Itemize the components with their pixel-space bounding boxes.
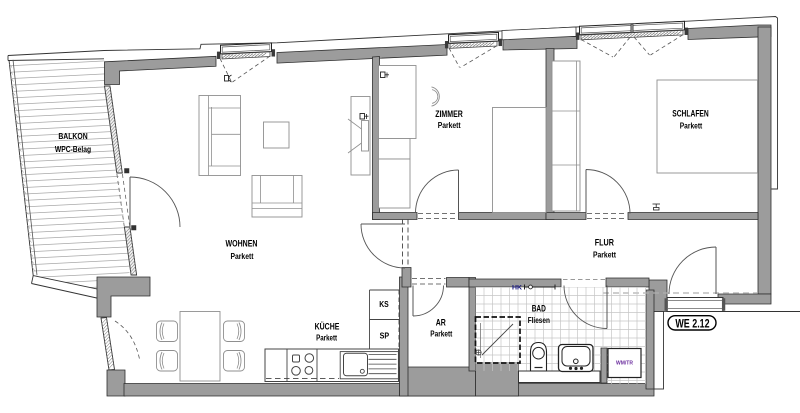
svg-text:ZIMMER: ZIMMER (435, 109, 463, 119)
svg-text:FLUR: FLUR (595, 238, 615, 248)
svg-text:BAD: BAD (532, 304, 546, 314)
svg-text:WM/TR: WM/TR (616, 361, 634, 367)
svg-text:BALKON: BALKON (58, 132, 87, 141)
svg-text:Parkett: Parkett (438, 121, 461, 130)
svg-text:SP: SP (380, 331, 390, 341)
svg-text:WE 2.12: WE 2.12 (675, 316, 709, 330)
svg-text:KS: KS (379, 299, 389, 309)
svg-text:Parkett: Parkett (231, 252, 254, 261)
svg-text:Parkett: Parkett (316, 333, 337, 342)
svg-text:Fliesen: Fliesen (528, 316, 550, 325)
svg-text:AR: AR (436, 318, 447, 328)
svg-text:Parkett: Parkett (593, 251, 616, 260)
svg-text:HK: HK (512, 284, 522, 291)
svg-text:KÜCHE: KÜCHE (315, 321, 340, 331)
svg-text:Parkett: Parkett (430, 330, 452, 339)
svg-text:WPC-Belag: WPC-Belag (55, 145, 91, 154)
svg-text:Parkett: Parkett (680, 121, 703, 130)
svg-text:WOHNEN: WOHNEN (226, 239, 258, 249)
svg-text:SCHLAFEN: SCHLAFEN (672, 108, 709, 118)
